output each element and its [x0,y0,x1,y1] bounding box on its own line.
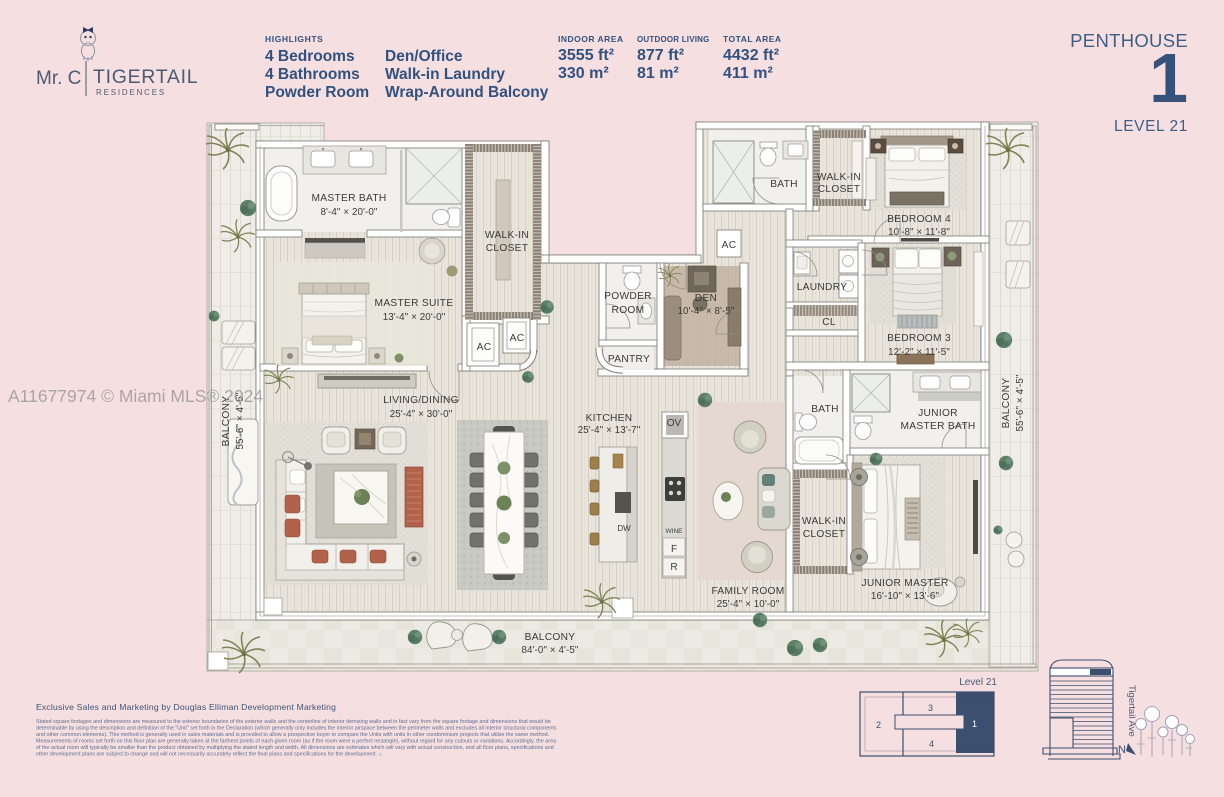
svg-text:CLOSET: CLOSET [803,529,846,540]
svg-text:25'-4" × 30'-0": 25'-4" × 30'-0" [390,409,453,420]
svg-text:JUNIOR: JUNIOR [918,408,958,419]
svg-text:DW: DW [617,524,631,533]
svg-text:Powder Room: Powder Room [265,84,369,101]
svg-text:Tigertail Ave: Tigertail Ave [1126,685,1137,737]
svg-text:Wrap-Around Balcony: Wrap-Around Balcony [385,84,549,101]
svg-text:R: R [670,562,677,573]
svg-text:LEVEL 21: LEVEL 21 [1114,118,1188,135]
svg-text:4 Bathrooms: 4 Bathrooms [265,66,360,83]
svg-text:Walk-in Laundry: Walk-in Laundry [385,66,505,83]
svg-text:330 m²: 330 m² [558,65,609,82]
svg-text:16'-10" × 13'-6": 16'-10" × 13'-6" [871,591,940,602]
svg-text:BEDROOM 3: BEDROOM 3 [887,333,951,344]
svg-text:4 Bedrooms: 4 Bedrooms [265,48,355,65]
svg-text:4432 ft²: 4432 ft² [723,47,779,64]
svg-text:WALK-IN: WALK-IN [485,230,529,241]
svg-text:FAMILY ROOM: FAMILY ROOM [711,586,784,597]
svg-text:INDOOR AREA: INDOOR AREA [558,34,624,44]
svg-text:13'-4" × 20'-0": 13'-4" × 20'-0" [383,312,446,323]
svg-text:411 m²: 411 m² [723,65,773,82]
svg-text:determinable by using the desc: determinable by using the description an… [36,726,557,732]
svg-text:CLOSET: CLOSET [486,243,529,254]
svg-text:F: F [671,544,677,555]
svg-text:RESIDENCES: RESIDENCES [96,88,166,97]
svg-text:OV: OV [667,418,682,429]
svg-text:4: 4 [929,739,934,749]
svg-text:84'-0" × 4'-5": 84'-0" × 4'-5" [521,645,578,656]
svg-text:CL: CL [822,317,836,328]
svg-text:ROOM: ROOM [612,305,645,316]
svg-text:JUNIOR MASTER: JUNIOR MASTER [861,578,948,589]
svg-text:BALCONY: BALCONY [525,632,576,643]
svg-text:8'-4" × 20'-0": 8'-4" × 20'-0" [320,207,377,218]
svg-text:10'-4" × 8'-5": 10'-4" × 8'-5" [677,306,734,317]
svg-text:877 ft²: 877 ft² [637,47,684,64]
svg-text:WALK-IN: WALK-IN [817,172,861,183]
svg-text:3555 ft²: 3555 ft² [558,47,614,64]
svg-text:other development plans are su: other development plans are subject to c… [36,752,382,758]
svg-text:TOTAL AREA: TOTAL AREA [723,34,782,44]
svg-text:MASTER BATH: MASTER BATH [901,421,976,432]
svg-text:DEN: DEN [695,293,717,304]
svg-text:BEDROOM 4: BEDROOM 4 [887,214,951,225]
svg-text:MASTER SUITE: MASTER SUITE [375,298,454,309]
svg-text:AC: AC [722,240,737,251]
svg-text:of the actual room will typica: of the actual room will typically be sma… [36,745,554,751]
svg-text:MASTER BATH: MASTER BATH [312,193,387,204]
svg-text:AC: AC [477,342,492,353]
svg-text:AC: AC [510,333,525,344]
svg-text:Exclusive Sales and Marketing: Exclusive Sales and Marketing by Douglas… [36,702,336,712]
svg-text:A11677974 © Miami MLS® 2024: A11677974 © Miami MLS® 2024 [8,386,263,406]
svg-text:OUTDOOR LIVING: OUTDOOR LIVING [637,35,710,44]
svg-text:12'-2" × 11'-5": 12'-2" × 11'-5" [888,347,950,358]
svg-text:25'-4" × 10'-0": 25'-4" × 10'-0" [717,599,780,610]
svg-text:55'-6" × 4'-5": 55'-6" × 4'-5" [1015,374,1026,431]
svg-text:2: 2 [876,720,881,730]
svg-text:10'-8" × 11'-8": 10'-8" × 11'-8" [888,227,950,238]
svg-text:BALCONY: BALCONY [1001,378,1012,429]
svg-text:LIVING/DINING: LIVING/DINING [383,395,459,406]
svg-text:BATH: BATH [811,404,839,415]
svg-text:Mr. C: Mr. C [36,68,81,89]
svg-text:Level 21: Level 21 [959,677,997,688]
svg-text:Den/Office: Den/Office [385,48,463,65]
svg-text:Stated square footages and dim: Stated square footages and dimensions ar… [36,719,551,725]
svg-text:and other common elements). Th: and other common elements). This method … [36,732,549,738]
svg-text:1: 1 [1149,39,1188,117]
svg-text:1: 1 [972,719,977,729]
svg-text:LAUNDRY: LAUNDRY [797,282,848,293]
svg-text:81 m²: 81 m² [637,65,679,82]
svg-text:CLOSET: CLOSET [818,184,861,195]
svg-text:WALK-IN: WALK-IN [802,516,846,527]
svg-text:N: N [1118,744,1126,756]
svg-text:BATH: BATH [770,179,798,190]
svg-text:TIGERTAIL: TIGERTAIL [93,66,198,88]
svg-text:Measurements of rooms set fort: Measurements of rooms set forth on this … [36,739,556,745]
svg-text:PANTRY: PANTRY [608,354,650,365]
svg-text:KITCHEN: KITCHEN [586,413,633,424]
svg-text:25'-4" × 13'-7": 25'-4" × 13'-7" [578,425,641,436]
svg-text:POWDER: POWDER [604,291,652,302]
svg-text:3: 3 [928,703,933,713]
svg-text:HIGHLIGHTS: HIGHLIGHTS [265,34,323,44]
svg-text:WINE: WINE [666,528,684,535]
